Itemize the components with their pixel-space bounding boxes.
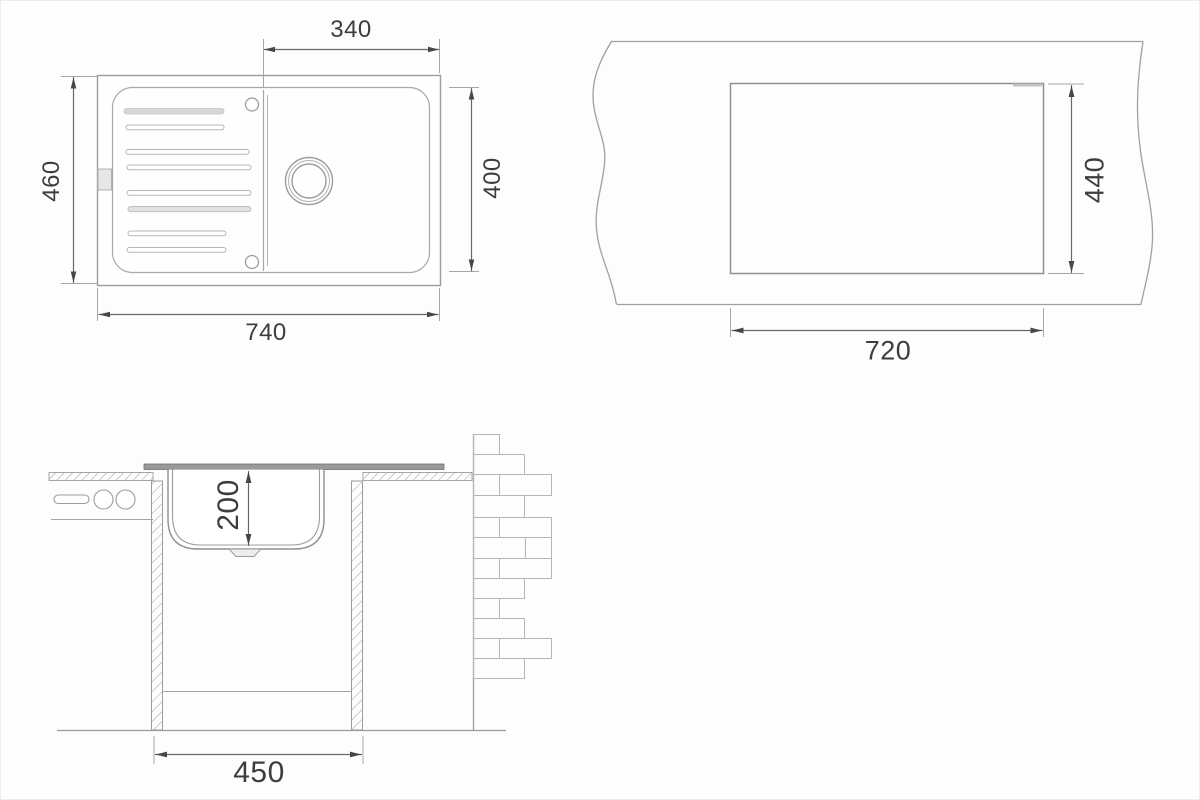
cabinet-front-detail — [51, 490, 153, 520]
sink-outer-edge — [98, 76, 441, 286]
dim-label-overall-width: 740 — [245, 321, 287, 345]
dim-label-overall-depth: 460 — [40, 160, 64, 202]
dim-label-bowl-depth: 400 — [481, 157, 505, 199]
cabinet-wall-right — [352, 481, 363, 730]
dim-label-bowl-width: 340 — [330, 18, 372, 42]
tap-hole-bottom — [246, 256, 259, 269]
dim-label-cabinet-width: 450 — [233, 758, 285, 788]
countertop-section-right — [363, 473, 472, 481]
cabinet-wall-left — [152, 481, 163, 730]
drain-flange — [229, 549, 261, 557]
cabinet-section-view — [49, 434, 552, 731]
dim-label-bowl-height: 200 — [214, 479, 244, 531]
drawing-linework — [1, 1, 1200, 800]
knob-left — [94, 490, 113, 509]
knob-right — [116, 490, 135, 509]
drawing-canvas: 340 460 400 740 440 720 200 450 — [0, 0, 1200, 800]
cutout-rectangle — [731, 84, 1044, 274]
drawer-handle — [54, 495, 89, 504]
dim-label-cutout-width: 720 — [865, 338, 912, 365]
dim-label-cutout-height: 440 — [1082, 157, 1109, 204]
brick-wall — [474, 434, 552, 730]
tap-hole-top — [246, 98, 259, 111]
countertop-section-left — [49, 473, 153, 481]
sink-rim-section — [144, 464, 444, 470]
countertop-cutout-view — [593, 42, 1153, 305]
sink-top-view — [98, 76, 441, 286]
overflow-tab — [98, 169, 112, 190]
